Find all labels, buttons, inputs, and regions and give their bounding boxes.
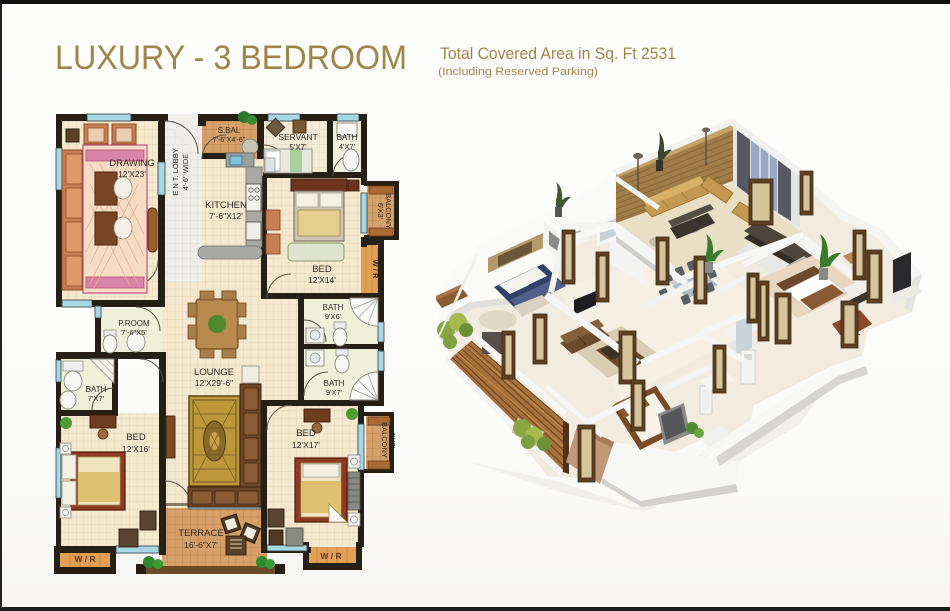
svg-text:6'X3': 6'X3' xyxy=(388,432,397,449)
svg-text:LUXURY - 3 BEDROOM: LUXURY - 3 BEDROOM xyxy=(55,39,407,77)
svg-text:12'X17': 12'X17' xyxy=(292,440,320,450)
svg-text:7'-6"X12': 7'-6"X12' xyxy=(209,211,243,221)
svg-text:5'X7': 5'X7' xyxy=(289,143,307,152)
svg-text:LOUNGE: LOUNGE xyxy=(194,367,234,378)
svg-text:7'-6"X4'-6": 7'-6"X4'-6" xyxy=(213,137,246,144)
svg-text:BATH: BATH xyxy=(323,303,344,312)
svg-text:W / R: W / R xyxy=(371,260,380,279)
svg-text:SERVANT: SERVANT xyxy=(278,132,317,142)
svg-text:W / R: W / R xyxy=(320,551,341,561)
svg-text:BATH: BATH xyxy=(86,385,107,394)
svg-text:9'X6': 9'X6' xyxy=(325,312,342,321)
svg-text:12'X23': 12'X23' xyxy=(118,169,146,179)
svg-text:12'X16': 12'X16' xyxy=(122,444,150,454)
svg-text:P.ROOM: P.ROOM xyxy=(118,319,150,328)
svg-text:7'X7': 7'X7' xyxy=(88,394,105,403)
svg-text:16'-6"X7': 16'-6"X7' xyxy=(184,540,218,550)
svg-text:TERRACE: TERRACE xyxy=(178,528,223,539)
svg-text:DRAWING: DRAWING xyxy=(109,158,155,169)
svg-text:BED: BED xyxy=(296,428,316,439)
svg-text:7'-6"X5': 7'-6"X5' xyxy=(121,328,147,337)
svg-text:BALCONY: BALCONY xyxy=(380,422,389,458)
svg-text:(Including Reserved Parking): (Including Reserved Parking) xyxy=(438,66,598,78)
svg-text:Total Covered Area in Sq. Ft: Total Covered Area in Sq. Ft 2531 xyxy=(440,45,676,63)
svg-text:S.BAL: S.BAL xyxy=(218,126,241,135)
svg-text:E N T. LOBBY: E N T. LOBBY xyxy=(171,148,180,195)
svg-text:BATH: BATH xyxy=(337,133,358,142)
svg-text:BED: BED xyxy=(312,264,332,275)
svg-text:12'X29'-6": 12'X29'-6" xyxy=(195,378,233,388)
svg-text:BED: BED xyxy=(126,432,146,443)
svg-text:12'X14': 12'X14' xyxy=(308,275,336,285)
svg-text:4'-6" WIDE: 4'-6" WIDE xyxy=(181,154,190,191)
svg-text:9'X7': 9'X7' xyxy=(326,388,343,397)
svg-text:KITCHEN: KITCHEN xyxy=(205,200,247,211)
svg-text:4'X7': 4'X7' xyxy=(339,142,356,151)
svg-text:BATH: BATH xyxy=(324,379,345,388)
svg-text:6'X3': 6'X3' xyxy=(376,203,385,220)
svg-text:W / R: W / R xyxy=(74,554,95,564)
